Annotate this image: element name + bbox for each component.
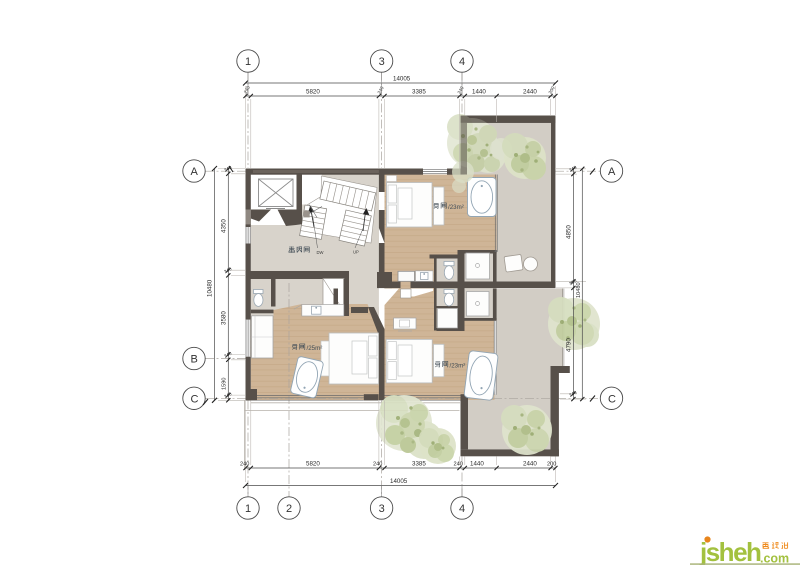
svg-text:1: 1	[245, 56, 251, 68]
svg-text:1440: 1440	[472, 89, 486, 96]
svg-text:2: 2	[286, 503, 292, 515]
svg-text:4790: 4790	[566, 338, 573, 352]
svg-text:DW: DW	[317, 250, 324, 255]
svg-text:4: 4	[459, 56, 465, 68]
svg-text:2440: 2440	[523, 89, 537, 96]
svg-text:/25m²: /25m²	[307, 345, 323, 352]
svg-text:14005: 14005	[393, 76, 411, 83]
svg-text:3: 3	[379, 56, 385, 68]
svg-text:1: 1	[245, 503, 251, 515]
svg-text:10480: 10480	[576, 282, 582, 298]
svg-text:C: C	[191, 393, 199, 405]
svg-text:/23m²: /23m²	[448, 204, 464, 211]
svg-text:B: B	[191, 354, 198, 366]
svg-text:240: 240	[373, 462, 382, 468]
svg-text:4850: 4850	[566, 225, 573, 239]
svg-text:14005: 14005	[390, 478, 408, 485]
svg-text:3385: 3385	[412, 89, 426, 96]
svg-text:/23m²: /23m²	[450, 362, 466, 369]
svg-text:1440: 1440	[470, 461, 484, 468]
svg-text:5820: 5820	[306, 461, 320, 468]
svg-text:C: C	[608, 393, 616, 405]
svg-text:200: 200	[547, 462, 556, 468]
svg-text:4350: 4350	[220, 219, 227, 233]
svg-text:10480: 10480	[207, 279, 214, 297]
svg-text:.com: .com	[760, 552, 789, 565]
svg-text:240: 240	[240, 462, 249, 468]
svg-text:240: 240	[454, 462, 463, 468]
svg-text:5820: 5820	[306, 89, 320, 96]
svg-text:UP: UP	[353, 250, 359, 255]
svg-text:2440: 2440	[523, 461, 537, 468]
svg-text:4: 4	[459, 503, 465, 515]
svg-text:A: A	[191, 166, 199, 178]
svg-text:A: A	[608, 166, 616, 178]
svg-text:3: 3	[379, 503, 385, 515]
svg-text:3580: 3580	[220, 311, 227, 325]
svg-text:1590: 1590	[221, 378, 227, 390]
svg-text:3385: 3385	[412, 461, 426, 468]
